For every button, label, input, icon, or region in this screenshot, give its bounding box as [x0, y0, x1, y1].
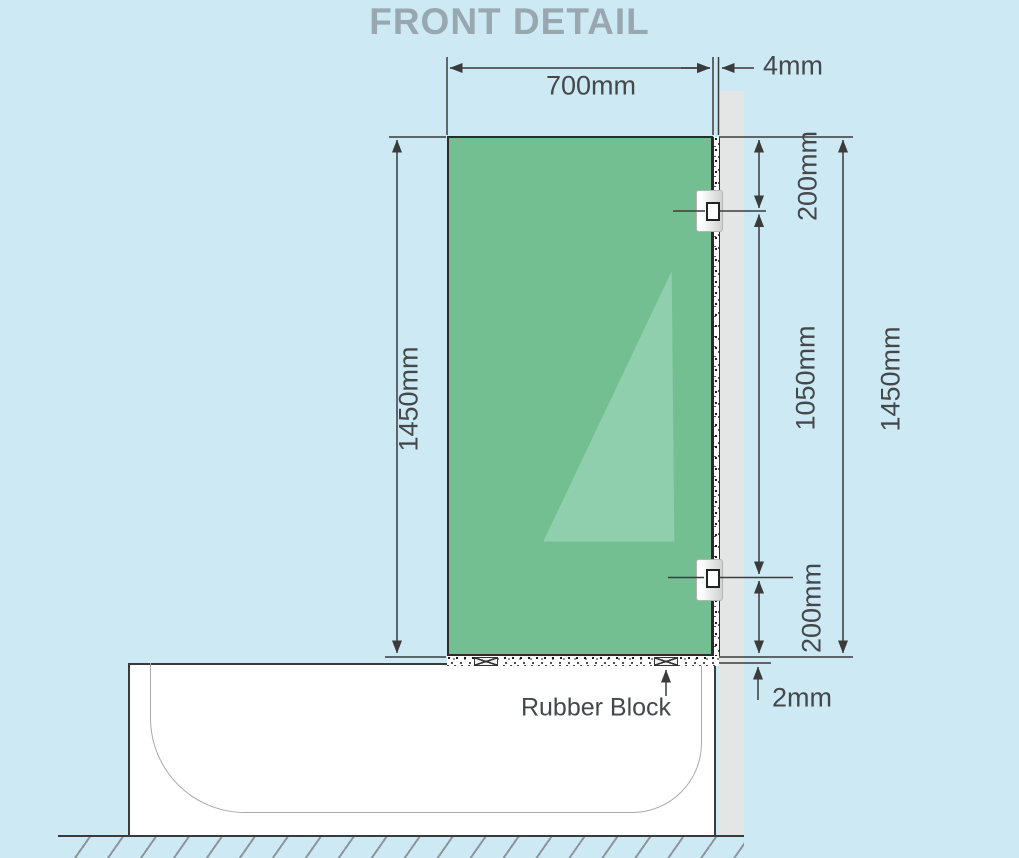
floor-hatching: [58, 837, 744, 858]
glass-panel: [447, 136, 713, 656]
dim-200mm-top-label: 200mm: [795, 131, 822, 221]
rubber-block-right: [654, 657, 678, 666]
dim-1450mm-right-label: 1450mm: [878, 326, 905, 431]
dim-200mm-bottom-label: 200mm: [799, 563, 826, 653]
dim-700mm-label: 700mm: [546, 73, 636, 100]
bottom-bracket: [696, 559, 723, 601]
bottom-bracket-plate: [706, 569, 720, 588]
dim-2mm-label: 2mm: [772, 685, 832, 712]
page-title: FRONT DETAIL: [0, 1, 1019, 43]
top-bracket-plate: [706, 202, 720, 221]
top-bracket: [696, 190, 723, 232]
bathtub: [128, 663, 716, 836]
dim-1450mm-left-label: 1450mm: [396, 346, 423, 451]
bathtub-inner-outline: [150, 663, 702, 813]
front-detail-diagram: FRONT DETAIL: [0, 0, 1019, 858]
glass-reflection: [449, 138, 711, 654]
dim-1050mm-label: 1050mm: [793, 325, 820, 430]
rubber-block-label: Rubber Block: [521, 696, 671, 721]
dim-4mm-label: 4mm: [763, 53, 823, 80]
rubber-block-left: [474, 657, 498, 666]
